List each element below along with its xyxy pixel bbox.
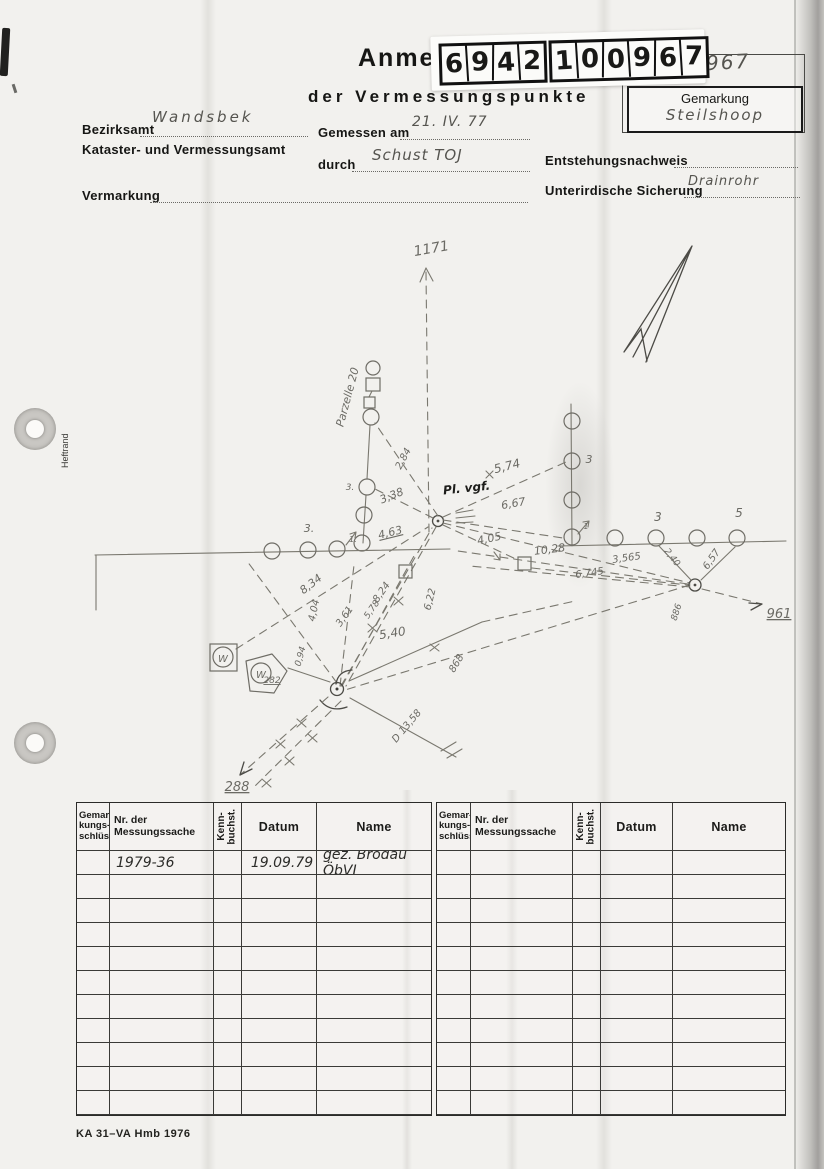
sketch-label: 5,40 <box>378 624 407 642</box>
table-cell-datum <box>601 1067 673 1091</box>
table-cell-gemar <box>77 995 110 1019</box>
sketch-label: 3. <box>346 483 355 493</box>
table-cell-datum <box>601 947 673 971</box>
parzelle-20-chain <box>354 361 380 551</box>
table-cell-kenn <box>573 1067 601 1091</box>
sketch-label: 3 <box>654 510 662 524</box>
north-arrow-icon <box>624 246 692 362</box>
table-cell-gemar <box>437 947 471 971</box>
table-cell-gemar <box>437 923 471 947</box>
table-cell-kenn <box>573 947 601 971</box>
sketch-label: 3,565 <box>612 551 642 566</box>
table-cell-nr <box>471 1019 573 1043</box>
table-cell-kenn <box>573 851 601 875</box>
col-header-gemarkungsschluessel: Gemar- kungs- schlüssel <box>77 803 110 851</box>
table-cell-nr <box>110 899 214 923</box>
col-header-name: Name <box>673 803 785 851</box>
table-cell-nr <box>471 1091 573 1115</box>
table-cell-nr <box>471 995 573 1019</box>
table-cell-gemar <box>77 1067 110 1091</box>
sketch-label: 3. <box>304 522 315 535</box>
table-cell-name <box>673 995 785 1019</box>
table-cell-nr <box>110 1043 214 1067</box>
table-cell-kenn <box>214 875 242 899</box>
form-code: KA 31–VA Hmb 1976 <box>76 1128 190 1140</box>
table-cell-name <box>673 947 785 971</box>
table-cell-datum <box>601 1019 673 1043</box>
table-cell-name <box>317 1043 431 1067</box>
col-header-name: Name <box>317 803 431 851</box>
sketch-labels: 1171Parzelle 202,843,38Pl. vgf.5,746,674… <box>218 238 791 795</box>
col-header-datum: Datum <box>601 803 673 851</box>
table-cell-datum <box>242 971 317 995</box>
table-cell-datum <box>242 875 317 899</box>
table-cell-name <box>673 1067 785 1091</box>
table-cell-datum <box>601 923 673 947</box>
table-cell-gemar <box>77 875 110 899</box>
col-header-messungssache: Nr. der Messungssache <box>471 803 573 851</box>
table-cell-nr <box>471 1043 573 1067</box>
table-cell-gemar <box>77 899 110 923</box>
table-cell-gemar <box>437 875 471 899</box>
table-cell-name <box>673 1043 785 1067</box>
sketch-label: W <box>256 670 267 681</box>
sketch-label: 4,05 <box>476 530 503 548</box>
table-cell-kenn <box>573 923 601 947</box>
sketch-label: D 13,58 <box>390 708 424 745</box>
sketch-label: 6,67 <box>500 495 526 512</box>
table-cell-datum <box>242 1067 317 1091</box>
table-cell-name <box>317 875 431 899</box>
table-cell-name <box>317 899 431 923</box>
table-cell-nr <box>471 851 573 875</box>
cross-ticks <box>262 597 439 787</box>
table-cell-datum <box>242 1043 317 1067</box>
table-cell-kenn <box>214 947 242 971</box>
table-cell-nr <box>471 875 573 899</box>
sketch-label: Parzelle 20 <box>333 366 361 428</box>
sketch-label: 6,22 <box>423 587 439 611</box>
sketch-label: 282 <box>263 676 280 686</box>
table-cell-gemar <box>437 1091 471 1115</box>
table-cell-gemar <box>437 851 471 875</box>
table-cell-nr <box>110 1067 214 1091</box>
sketch-label: 1. <box>349 535 357 544</box>
table-cell-datum <box>601 851 673 875</box>
table-cell-gemar <box>77 923 110 947</box>
table-cell-nr <box>471 899 573 923</box>
sketch-label: 8,34 <box>297 572 324 597</box>
sketch-label: 5 <box>735 506 743 520</box>
table-cell-nr <box>110 971 214 995</box>
table-cell-nr <box>471 1067 573 1091</box>
table-cell-gemar <box>437 1019 471 1043</box>
sketch-label: 3 <box>586 453 593 466</box>
measurement-log-table-right: Gemar- kungs- schlüssel Nr. der Messungs… <box>436 802 786 1116</box>
sketch-label: 961 <box>767 607 792 622</box>
table-cell-name <box>673 971 785 995</box>
table-cell-nr <box>110 995 214 1019</box>
table-cell-nr <box>110 875 214 899</box>
sketch-label: 3,38 <box>378 485 406 506</box>
table-cell-name <box>673 1019 785 1043</box>
sketch-label: W <box>218 654 229 665</box>
table-cell-nr <box>110 923 214 947</box>
col-header-messungssache: Nr. der Messungssache <box>110 803 214 851</box>
sketch-label: Pl. vgf. <box>442 479 490 498</box>
table-cell-datum: 19.09.79 <box>242 851 317 875</box>
sketch-label: 1 <box>583 522 588 531</box>
table-cell-kenn <box>214 923 242 947</box>
table-cell-kenn <box>214 1067 242 1091</box>
table-cell-kenn <box>573 995 601 1019</box>
table-cell-datum <box>242 947 317 971</box>
table-cell-name <box>673 1091 785 1115</box>
table-cell-name <box>317 971 431 995</box>
table-cell-gemar <box>437 971 471 995</box>
table-cell-datum <box>601 1091 673 1115</box>
table-cell-kenn <box>214 995 242 1019</box>
sketch-label: 868 <box>447 653 466 675</box>
table-cell-kenn <box>573 971 601 995</box>
table-cell-nr <box>110 1091 214 1115</box>
center-survey-point <box>433 510 476 527</box>
table-cell-datum <box>242 923 317 947</box>
table-cell-kenn <box>214 1019 242 1043</box>
col-header-gemarkungsschluessel: Gemar- kungs- schlüssel <box>437 803 471 851</box>
sketch-label: 10,28 <box>533 541 566 558</box>
table-cell-name <box>317 923 431 947</box>
table-cell-name: gez. Brödau ÖbVI <box>317 851 431 875</box>
table-cell-kenn <box>573 1019 601 1043</box>
table-cell-kenn <box>573 875 601 899</box>
table-cell-nr <box>110 947 214 971</box>
table-cell-name <box>673 899 785 923</box>
table-cell-nr <box>471 923 573 947</box>
measurement-log-table-left: Gemar- kungs- schlüssel Nr. der Messungs… <box>76 802 432 1116</box>
line-to-1171 <box>426 272 429 532</box>
table-cell-datum <box>601 971 673 995</box>
table-cell-datum <box>242 1091 317 1115</box>
table-cell-kenn <box>573 1091 601 1115</box>
table-cell-gemar <box>77 851 110 875</box>
col-header-kennbuchst: Kenn- buchst. <box>214 803 242 851</box>
table-cell-kenn <box>214 899 242 923</box>
table-cell-datum <box>601 1043 673 1067</box>
table-cell-nr <box>471 947 573 971</box>
sketch-label: 2,84 <box>394 446 414 471</box>
table-cell-kenn <box>214 971 242 995</box>
table-cell-name <box>317 1091 431 1115</box>
table-cell-name <box>317 995 431 1019</box>
sketch-label: 6,57 <box>701 547 723 572</box>
table-cell-kenn <box>214 1043 242 1067</box>
table-cell-nr: 1979-36 <box>110 851 214 875</box>
table-cell-gemar <box>77 947 110 971</box>
table-cell-gemar <box>77 1091 110 1115</box>
table-cell-kenn <box>214 851 242 875</box>
table-cell-datum <box>242 899 317 923</box>
table-cell-nr <box>471 971 573 995</box>
left-boundary <box>95 532 450 610</box>
sketch-label: 886 <box>670 602 685 622</box>
sketch-label: 2,40 <box>661 547 681 569</box>
table-cell-gemar <box>437 1043 471 1067</box>
col-header-datum: Datum <box>242 803 317 851</box>
table-cell-gemar <box>437 899 471 923</box>
table-cell-gemar <box>437 1067 471 1091</box>
col-header-kennbuchst: Kenn- buchst. <box>573 803 601 851</box>
sketch-label: 1171 <box>412 238 450 260</box>
right-boundary <box>558 404 786 546</box>
table-cell-datum <box>601 995 673 1019</box>
table-cell-kenn <box>214 1091 242 1115</box>
table-cell-name <box>673 875 785 899</box>
sketch-label: 5,74 <box>492 456 521 476</box>
sketch-label: 3,61 <box>334 604 356 629</box>
table-cell-name <box>317 1019 431 1043</box>
table-cell-nr <box>110 1019 214 1043</box>
table-cell-kenn <box>573 1043 601 1067</box>
table-cell-gemar <box>77 1019 110 1043</box>
table-cell-datum <box>242 1019 317 1043</box>
sketch-label: 4,63 <box>377 523 404 542</box>
table-cell-name <box>317 947 431 971</box>
table-cell-gemar <box>437 995 471 1019</box>
table-cell-gemar <box>77 971 110 995</box>
table-cell-datum <box>242 995 317 1019</box>
table-cell-name <box>673 923 785 947</box>
scanned-survey-form: Anme der Vermessungspunkte Punkt-Nr. 967… <box>0 0 824 1169</box>
sketch-label: 288 <box>225 780 250 795</box>
table-cell-datum <box>601 875 673 899</box>
table-cell-kenn <box>573 899 601 923</box>
table-cell-gemar <box>77 1043 110 1067</box>
table-cell-name <box>673 851 785 875</box>
table-cell-datum <box>601 899 673 923</box>
sketch-label: 0,94 <box>294 645 309 667</box>
table-cell-name <box>317 1067 431 1091</box>
